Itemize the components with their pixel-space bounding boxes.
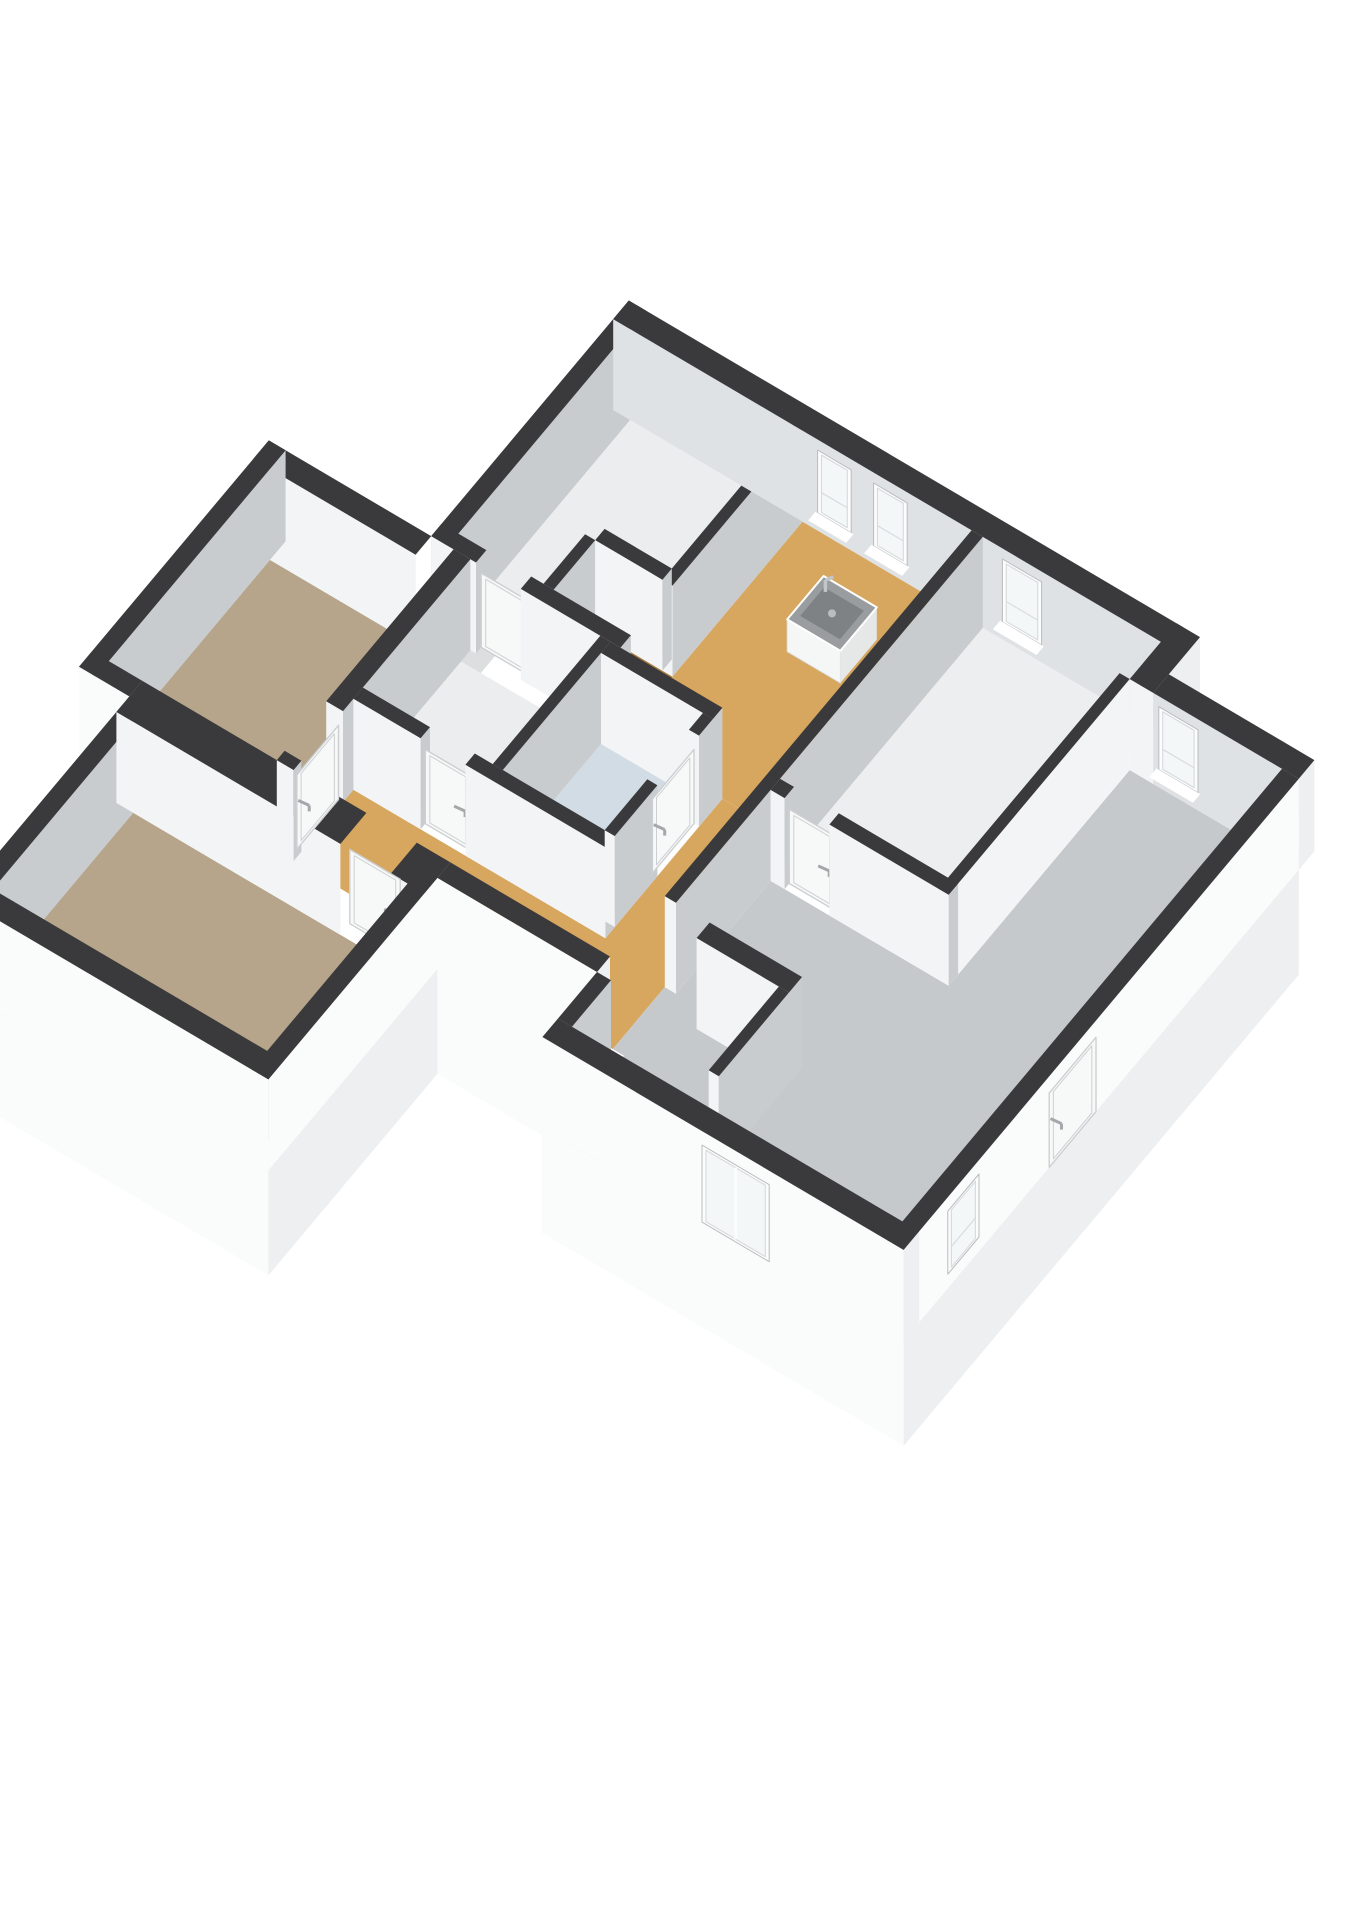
wall-bath-e2-face-s: [605, 830, 615, 927]
wall-partition-a-face-e: [789, 977, 802, 1084]
wall-kitchen-bath-face-e: [713, 708, 722, 810]
wall-bed2-s-a-face-s: [771, 790, 785, 889]
wall-closet-n-face-e: [662, 569, 671, 671]
wall-hall-e-face-s: [665, 896, 676, 994]
wall-bed2-s-b-face-e: [949, 884, 958, 986]
ext-ne-living-face-e: [1299, 760, 1315, 870]
kitchen-sink-unit-drain: [828, 609, 836, 617]
wall-bath-e1-face-e: [699, 719, 713, 827]
floorplan-stage: [0, 0, 1358, 1920]
ext-south-face-e: [904, 1231, 920, 1341]
floorplan-3d-render: [0, 0, 1358, 1920]
ext-ne-jog-face-s: [1130, 679, 1154, 784]
wall-wing-e2-face-s: [277, 760, 294, 861]
